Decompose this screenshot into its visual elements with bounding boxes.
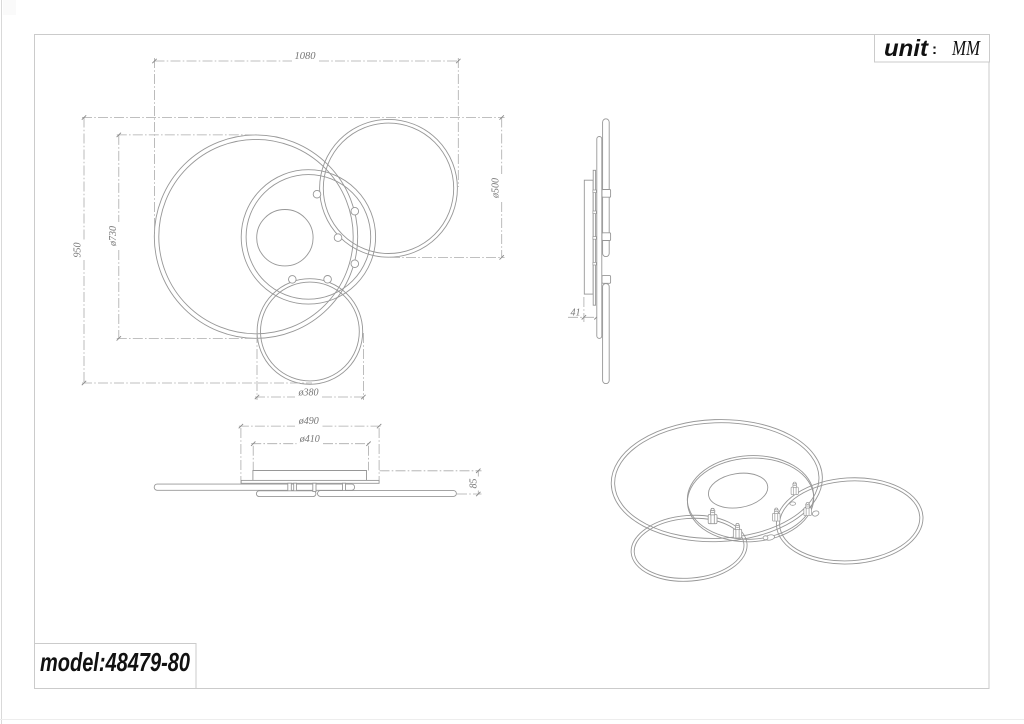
svg-text:MM: MM bbox=[951, 36, 981, 60]
svg-text:ø730: ø730 bbox=[108, 226, 119, 247]
svg-text:1080: 1080 bbox=[295, 51, 316, 62]
svg-text:ø500: ø500 bbox=[491, 178, 502, 199]
svg-text:model:48479-80: model:48479-80 bbox=[40, 647, 190, 677]
svg-text:ø490: ø490 bbox=[298, 416, 319, 427]
svg-text:ø410: ø410 bbox=[299, 434, 320, 445]
svg-text:ø380: ø380 bbox=[298, 388, 319, 399]
svg-text:41: 41 bbox=[571, 308, 581, 319]
svg-text:unit: unit bbox=[884, 35, 929, 61]
svg-text::: : bbox=[932, 41, 937, 58]
svg-text:950: 950 bbox=[73, 243, 84, 258]
svg-text:85: 85 bbox=[469, 479, 480, 489]
